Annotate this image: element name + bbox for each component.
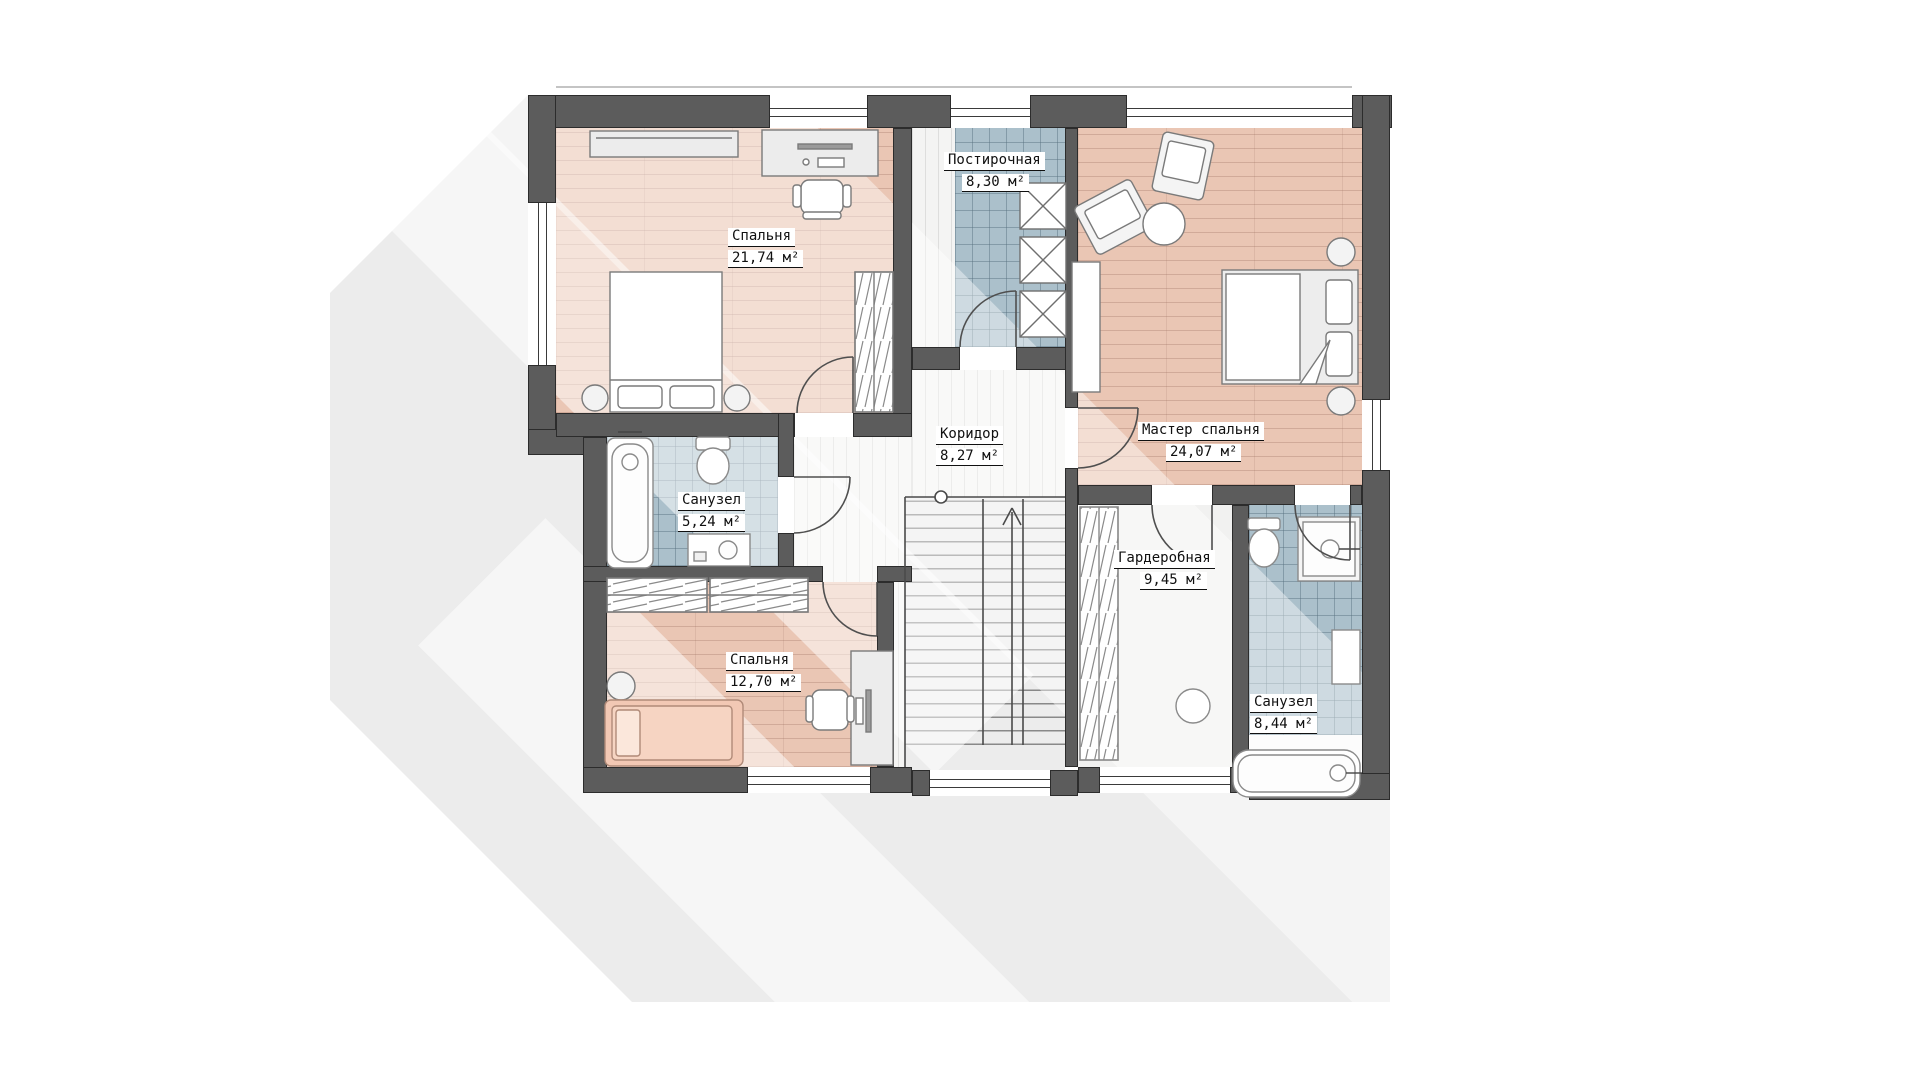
wall bbox=[877, 582, 894, 767]
room-label-wardrobe: Гардеробная 9,45 м² bbox=[1114, 550, 1215, 590]
window bbox=[1127, 95, 1352, 128]
bathroom2-tub-zone bbox=[1249, 735, 1362, 773]
window bbox=[1362, 400, 1390, 470]
wall bbox=[1065, 128, 1078, 408]
floor-plan-canvas: Спальня 21,74 м² Постирочная 8,30 м² Мас… bbox=[0, 0, 1920, 1080]
room-label-bathroom2: Санузел 8,44 м² bbox=[1250, 694, 1317, 734]
room-label-laundry: Постирочная 8,30 м² bbox=[944, 152, 1045, 192]
room-label-corridor: Коридор 8,27 м² bbox=[936, 426, 1003, 466]
room-label-bedroom2: Спальня 12,70 м² bbox=[726, 652, 801, 692]
wall bbox=[893, 128, 912, 437]
wall bbox=[867, 95, 951, 128]
window bbox=[748, 767, 870, 793]
wall bbox=[1232, 505, 1249, 767]
window bbox=[951, 95, 1030, 128]
wall bbox=[1065, 468, 1078, 767]
wall bbox=[877, 566, 912, 582]
room-name: Мастер спальня bbox=[1138, 422, 1264, 441]
bedroom1-floor bbox=[556, 128, 893, 413]
wall bbox=[1078, 767, 1100, 793]
room-name: Коридор bbox=[936, 426, 1003, 445]
room-name: Санузел bbox=[1250, 694, 1317, 713]
wall bbox=[1212, 485, 1295, 505]
room-area: 8,44 м² bbox=[1250, 716, 1317, 735]
room-label-bathroom1: Санузел 5,24 м² bbox=[678, 492, 745, 532]
wall bbox=[1078, 485, 1152, 505]
window bbox=[930, 770, 1050, 796]
room-name: Санузел bbox=[678, 492, 745, 511]
room-area: 5,24 м² bbox=[678, 514, 745, 533]
room-area: 24,07 м² bbox=[1166, 444, 1241, 463]
wall bbox=[1350, 485, 1362, 505]
window bbox=[528, 203, 556, 365]
room-area: 12,70 м² bbox=[726, 674, 801, 693]
room-area: 9,45 м² bbox=[1140, 572, 1207, 591]
wall bbox=[912, 770, 930, 796]
wall bbox=[1050, 770, 1078, 796]
wall bbox=[1249, 773, 1390, 800]
room-area: 21,74 м² bbox=[728, 250, 803, 269]
wall bbox=[1362, 95, 1390, 400]
wall bbox=[583, 437, 607, 793]
window bbox=[770, 95, 867, 128]
wall bbox=[870, 767, 912, 793]
wall bbox=[528, 95, 770, 128]
room-label-bedroom1: Спальня 21,74 м² bbox=[728, 228, 803, 268]
wall bbox=[1362, 470, 1390, 800]
staircase bbox=[905, 497, 1065, 745]
stair-landing bbox=[905, 745, 1065, 770]
wall bbox=[778, 413, 794, 477]
wall bbox=[853, 413, 912, 437]
room-name: Гардеробная bbox=[1114, 550, 1215, 569]
wall bbox=[583, 566, 823, 582]
window bbox=[1100, 767, 1230, 793]
wall bbox=[556, 413, 795, 437]
room-name: Спальня bbox=[728, 228, 795, 247]
wall bbox=[1230, 767, 1249, 793]
room-name: Спальня bbox=[726, 652, 793, 671]
wall bbox=[583, 767, 748, 793]
wall bbox=[912, 347, 960, 370]
wall bbox=[528, 95, 556, 203]
wardrobe-floor bbox=[1078, 505, 1232, 767]
wall bbox=[1030, 95, 1127, 128]
room-area: 8,27 м² bbox=[936, 448, 1003, 467]
room-area: 8,30 м² bbox=[962, 174, 1029, 193]
room-label-master-bedroom: Мастер спальня 24,07 м² bbox=[1138, 422, 1264, 462]
room-name: Постирочная bbox=[944, 152, 1045, 171]
